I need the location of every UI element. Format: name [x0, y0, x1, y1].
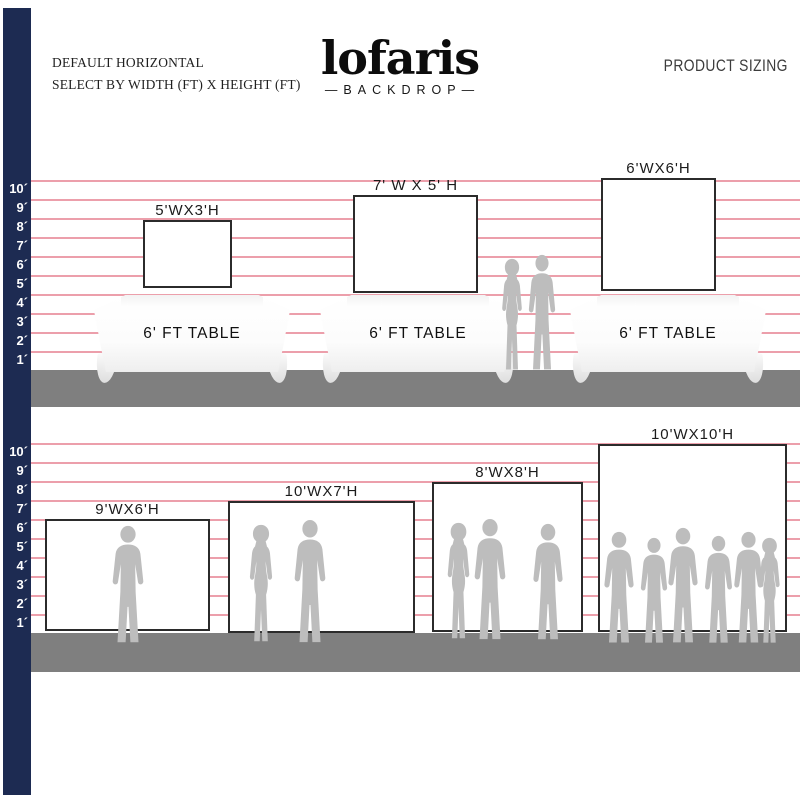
tagline-line1: DEFAULT HORIZONTAL — [52, 52, 301, 74]
ruler-label: 6´ — [0, 258, 28, 271]
backdrop-5x3: 5'WX3'H — [143, 220, 232, 288]
banquet-table: 6' FT TABLE — [570, 295, 766, 372]
ruler-label: 7´ — [0, 239, 28, 252]
person-silhouette-woman — [754, 537, 785, 646]
ruler-label: 9´ — [0, 201, 28, 214]
ruler-label: 6´ — [0, 521, 28, 534]
ruler-label: 3´ — [0, 315, 28, 328]
person-silhouette-man — [469, 518, 511, 643]
banquet-table: 6' FT TABLE — [94, 295, 290, 372]
person-silhouette-man — [528, 523, 568, 643]
ruler-label: 8´ — [0, 220, 28, 233]
person-silhouette-man — [663, 527, 703, 646]
table-size-label: 6' FT TABLE — [570, 325, 766, 343]
ruler-label: 9´ — [0, 464, 28, 477]
tagline-line2: SELECT BY WIDTH (FT) X HEIGHT (FT) — [52, 74, 301, 96]
ruler-label: 8´ — [0, 483, 28, 496]
table-size-label: 6' FT TABLE — [94, 325, 290, 343]
tagline: DEFAULT HORIZONTAL SELECT BY WIDTH (FT) … — [52, 52, 301, 95]
ruler-label: 1´ — [0, 353, 28, 366]
table-size-label: 6' FT TABLE — [320, 325, 516, 343]
person-silhouette-man — [599, 531, 639, 646]
person-silhouette-man — [289, 519, 331, 646]
backdrop-size-label: 10'WX7'H — [184, 483, 459, 500]
backdrop-6x6: 6'WX6'H — [601, 178, 716, 291]
product-sizing-title: PRODUCT SIZING — [664, 57, 788, 76]
person-silhouette-man — [524, 254, 560, 373]
product-sizing-page: DEFAULT HORIZONTAL SELECT BY WIDTH (FT) … — [0, 0, 800, 800]
ruler-label: 3´ — [0, 578, 28, 591]
backdrop-size-label: 6'WX6'H — [575, 160, 742, 177]
banquet-table: 6' FT TABLE — [320, 295, 516, 372]
ruler-label: 5´ — [0, 277, 28, 290]
person-silhouette-woman — [244, 524, 278, 645]
ruler-label: 5´ — [0, 540, 28, 553]
ground-strip-top — [31, 370, 800, 407]
backdrop-size-label: 8'WX8'H — [397, 464, 618, 481]
brand-subtitle: —BACKDROP— — [290, 83, 510, 97]
ruler-label: 10´ — [0, 445, 28, 458]
ruler-label: 4´ — [0, 296, 28, 309]
ruler-label: 1´ — [0, 616, 28, 629]
person-silhouette-man — [107, 525, 149, 646]
ruler-label: 2´ — [0, 334, 28, 347]
ruler-label: 2´ — [0, 597, 28, 610]
person-silhouette-woman — [497, 258, 527, 373]
backdrop-size-label: 7' W X 5' H — [325, 177, 507, 194]
backdrop-size-label: 9'WX6'H — [7, 501, 249, 518]
ruler-label: 4´ — [0, 559, 28, 572]
brand-logo: lofaris —BACKDROP— — [290, 34, 510, 97]
backdrop-7x5: 7' W X 5' H — [353, 195, 478, 293]
brand-wordmark: lofaris — [290, 34, 510, 82]
ruler-label: 7´ — [0, 502, 28, 515]
backdrop-size-label: 5'WX3'H — [124, 202, 252, 219]
ruler-label: 10´ — [0, 182, 28, 195]
height-ruler-bar — [3, 8, 31, 795]
backdrop-size-label: 10'WX10'H — [554, 426, 800, 443]
